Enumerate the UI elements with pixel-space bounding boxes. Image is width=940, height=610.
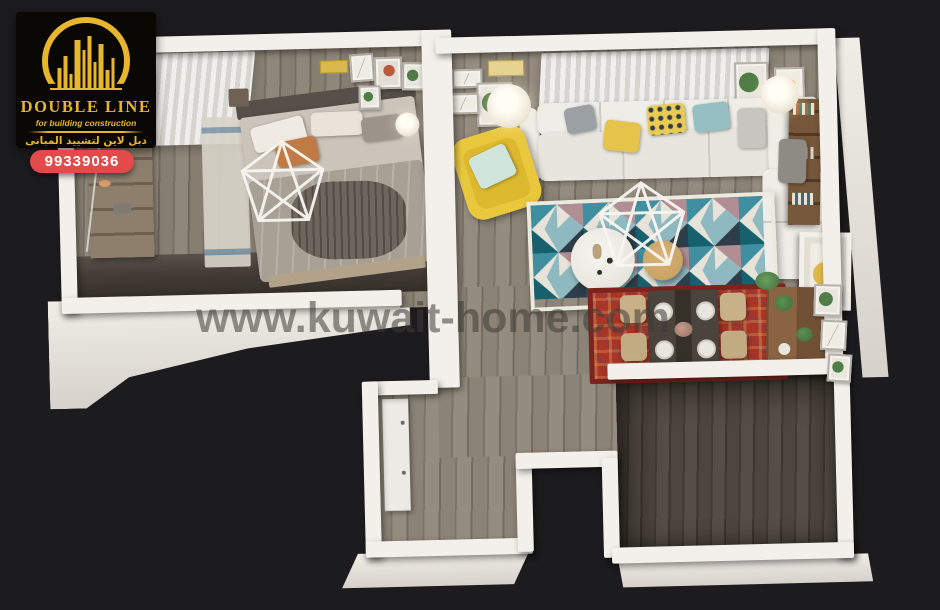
art-frame (449, 93, 480, 115)
hallway-closet (382, 399, 411, 512)
dining-chair (721, 330, 748, 359)
brand-tagline: for building construction (16, 118, 156, 128)
company-logo: DOUBLE LINE for building construction دب… (16, 12, 156, 148)
dining-chair (720, 292, 747, 321)
logo-baseline (50, 88, 122, 90)
hallway-jog-wall (368, 380, 438, 396)
hallway-floor-entry (438, 373, 620, 457)
empty-room-floor (616, 374, 838, 549)
art-frame (820, 320, 847, 351)
living-geometric-chandelier (591, 176, 693, 278)
books (793, 103, 815, 115)
sofa-pillow-teal (692, 101, 731, 133)
chaise-pillow-darkgray (778, 139, 807, 184)
empty-room-west-wall (602, 458, 620, 558)
entry-step-wall (516, 460, 534, 552)
folded-clothes (113, 203, 131, 213)
bed-pillow-white (310, 111, 363, 137)
sofa-pillow-patterned (646, 103, 687, 136)
books (792, 193, 814, 205)
rug-stripe (204, 248, 250, 255)
phone-number: 99339036 (45, 153, 120, 170)
dinner-plate (696, 301, 715, 320)
watermark-text: www.kuwait-home.com (196, 294, 670, 343)
shoe-pair-icon (99, 180, 111, 187)
wall-sign (320, 60, 348, 74)
potted-plant-icon (796, 327, 812, 341)
art-frame (358, 85, 381, 110)
bedroom-geometric-chandelier (234, 134, 332, 232)
brand-name: DOUBLE LINE (16, 97, 156, 117)
nightstand (228, 88, 248, 106)
potted-plant-icon (775, 295, 793, 311)
city-buildings-icon (58, 36, 115, 88)
art-frame (349, 53, 375, 83)
closet-handle (401, 421, 405, 425)
dinner-plate (655, 340, 674, 359)
bedroom-wall-art-group (320, 52, 431, 115)
closet-handle (402, 471, 406, 475)
bowl (778, 343, 790, 355)
logo-divider (28, 131, 144, 133)
dinner-plate (697, 339, 716, 358)
botanical-frames (811, 284, 854, 389)
brand-tagline-arabic: دبل لاين لتشييد المبانى (16, 135, 156, 147)
sofa-pillow-lightgray (737, 108, 766, 149)
art-frame (827, 353, 853, 382)
wall-sign (488, 60, 524, 77)
phone-number-badge: 99339036 (30, 150, 134, 173)
sofa-pillow-yellow (602, 119, 641, 153)
logo-mark (16, 12, 156, 96)
art-frame (813, 284, 842, 317)
